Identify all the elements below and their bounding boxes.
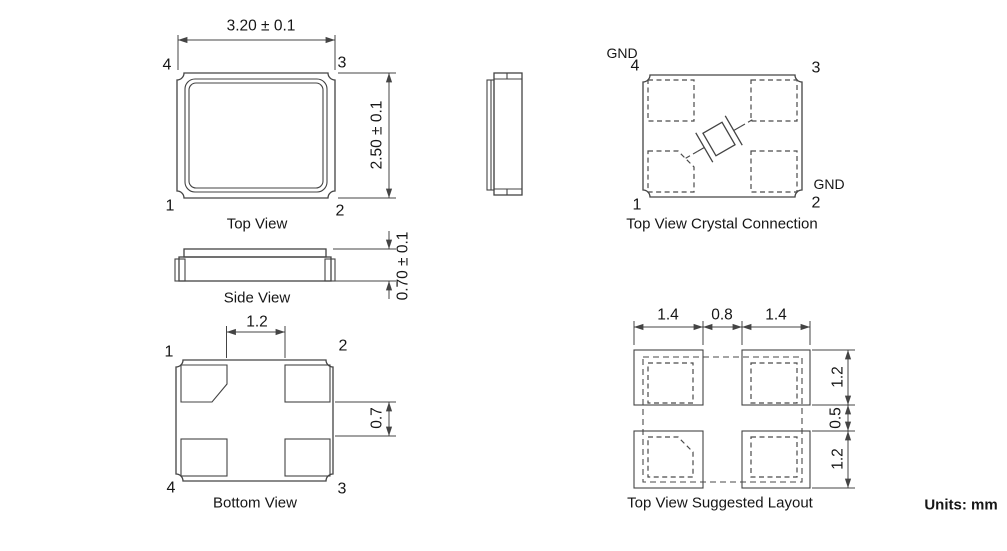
top-view-title: Top View	[227, 216, 288, 233]
gnd-label-pin2: GND	[813, 176, 844, 192]
crystal-pad3-dashed	[751, 80, 797, 121]
units-label: Units: mm	[924, 497, 997, 514]
top-view-package-outline	[177, 73, 335, 198]
layout-pad-bottom-right	[742, 431, 810, 488]
layout-pad4-dashed	[648, 363, 693, 403]
dim-pad-gap-label: 1.2	[246, 314, 268, 331]
end-view-body	[494, 73, 522, 195]
crystal-lead-left-dashed	[684, 152, 697, 160]
suggested-layout-title: Top View Suggested Layout	[627, 495, 814, 512]
bottom-pad1	[181, 365, 227, 402]
bottom-view-diagram: 1.2 0.7 1 2 4 3 Bottom View	[165, 314, 396, 512]
top-view-pin4-label: 4	[163, 57, 172, 74]
crystal-lead-right-dashed	[741, 119, 754, 127]
crystal-pin1-label: 1	[633, 197, 642, 214]
crystal-lead-left	[697, 148, 704, 152]
dim-pad-width-left-label: 1.4	[657, 307, 679, 324]
bottom-view-package-outline	[176, 360, 333, 481]
dim-height-label: 2.50 ± 0.1	[369, 101, 386, 170]
dim-pad-width-right-label: 1.4	[765, 307, 787, 324]
layout-pad2-dashed	[751, 437, 797, 477]
side-view-diagram: 0.70 ± 0.1 Side View	[175, 231, 412, 307]
side-view-left-pad	[175, 259, 185, 281]
dim-pad-gap-v-label: 0.5	[828, 407, 845, 429]
bottom-view-pin4-label: 4	[167, 480, 176, 497]
technical-drawing-canvas: 3.20 ± 0.1 2.50 ± 0.1 4 3 1 2 Top View 0…	[0, 0, 1007, 551]
crystal-body	[703, 122, 735, 156]
dim-pad-height-top-label: 1.2	[830, 366, 847, 388]
crystal-pad4-dashed	[648, 80, 694, 121]
bottom-pad2	[285, 365, 330, 402]
top-view-pin3-label: 3	[338, 55, 347, 72]
bottom-view-pin2-label: 2	[339, 338, 348, 355]
dim-pad-corner-label: 0.7	[369, 407, 386, 429]
crystal-symbol	[676, 104, 762, 173]
bottom-pad3	[285, 439, 330, 476]
crystal-lead-right	[734, 127, 741, 131]
crystal-connection-title: Top View Crystal Connection	[626, 216, 817, 233]
dim-pad-height-bottom-label: 1.2	[830, 448, 847, 470]
layout-pad-bottom-left	[634, 431, 703, 488]
crystal-pad2-dashed	[751, 151, 797, 192]
layout-package-outline-dashed	[643, 357, 802, 482]
crystal-connection-package-outline	[643, 75, 802, 197]
side-view-right-pad	[325, 259, 335, 281]
top-view-pin2-label: 2	[336, 203, 345, 220]
top-view-pin1-label: 1	[166, 198, 175, 215]
layout-pad-top-right	[742, 350, 810, 405]
top-view-lid-outer-edge	[185, 79, 327, 192]
crystal-pin2-label: 2	[812, 195, 821, 212]
dim-pad-gap-h-label: 0.8	[711, 307, 733, 324]
bottom-pad4	[181, 439, 227, 476]
package-drawing-page: 3.20 ± 0.1 2.50 ± 0.1 4 3 1 2 Top View 0…	[0, 0, 1007, 551]
bottom-view-pin3-label: 3	[338, 481, 347, 498]
side-view-lid	[184, 249, 326, 257]
side-view-body	[179, 257, 331, 281]
crystal-pin3-label: 3	[812, 60, 821, 77]
bottom-view-title: Bottom View	[213, 495, 297, 512]
layout-pad1-dashed	[648, 437, 693, 477]
dim-width-label: 3.20 ± 0.1	[227, 18, 296, 35]
side-view-title: Side View	[224, 290, 291, 307]
end-view-diagram	[487, 73, 522, 195]
bottom-view-pin1-label: 1	[165, 344, 174, 361]
dim-thickness-label: 0.70 ± 0.1	[395, 232, 412, 301]
crystal-pin4-label: 4	[631, 58, 640, 75]
crystal-plate-right	[725, 116, 742, 145]
layout-pad3-dashed	[751, 363, 797, 403]
top-view-diagram: 3.20 ± 0.1 2.50 ± 0.1 4 3 1 2 Top View	[163, 18, 396, 233]
suggested-layout-diagram: 1.4 0.8 1.4 1.2 0.5 1.2 Top View Suggest…	[627, 307, 855, 512]
top-view-lid-inner-edge	[189, 83, 323, 188]
crystal-plate-left	[696, 133, 713, 162]
crystal-connection-diagram: GND 4 3 1 GND 2 Top View Crystal Connect…	[606, 45, 844, 233]
